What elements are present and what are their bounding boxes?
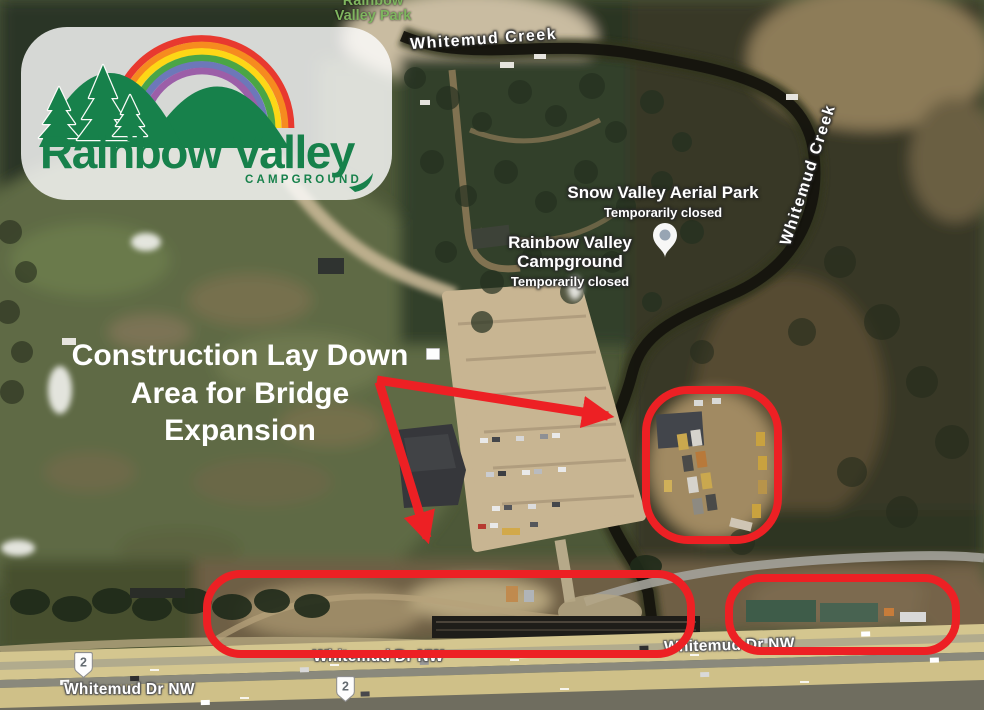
map-canvas: Rainbow Valley Park Whitemud Creek White…: [0, 0, 984, 710]
poi-name-line1: Rainbow Valley: [470, 233, 670, 252]
poi-name-line2: Campground: [470, 252, 670, 271]
annotation-line3: Expansion: [28, 412, 452, 450]
svg-text:2: 2: [342, 680, 349, 694]
svg-text:2: 2: [80, 656, 87, 670]
road-label-whitemud-dr-nw-left: Whitemud Dr NW: [64, 681, 195, 699]
park-label-line2: Valley Park: [330, 9, 416, 24]
poi-rainbow-valley-campground[interactable]: Rainbow Valley Campground Temporarily cl…: [470, 233, 670, 289]
annotation-text-construction-laydown: Construction Lay Down Area for Bridge Ex…: [28, 337, 452, 450]
poi-status: Temporarily closed: [553, 205, 773, 220]
annotation-line1: Construction Lay Down: [28, 337, 452, 375]
rainbow-valley-campground-logo: Rainbow Valley CAMPGROUND: [21, 27, 392, 200]
highway-2-shield-icon-right: 2: [335, 675, 356, 703]
logo-title: Rainbow Valley: [40, 129, 354, 175]
highlight-box-laydown-yard: [642, 386, 782, 544]
logo-subtitle: CAMPGROUND: [245, 174, 362, 186]
poi-snow-valley-aerial-park[interactable]: Snow Valley Aerial Park Temporarily clos…: [553, 183, 773, 220]
highlight-box-bridge-west: [203, 570, 695, 658]
park-label-rainbow-valley-park[interactable]: Rainbow Valley Park: [330, 0, 416, 24]
annotation-line2: Area for Bridge: [28, 375, 452, 413]
highlight-box-bridge-east: [725, 574, 960, 655]
poi-name: Snow Valley Aerial Park: [553, 183, 773, 202]
map-pin-icon[interactable]: [650, 222, 680, 260]
highway-2-shield-icon-left: 2: [73, 651, 94, 679]
poi-status: Temporarily closed: [470, 274, 670, 289]
